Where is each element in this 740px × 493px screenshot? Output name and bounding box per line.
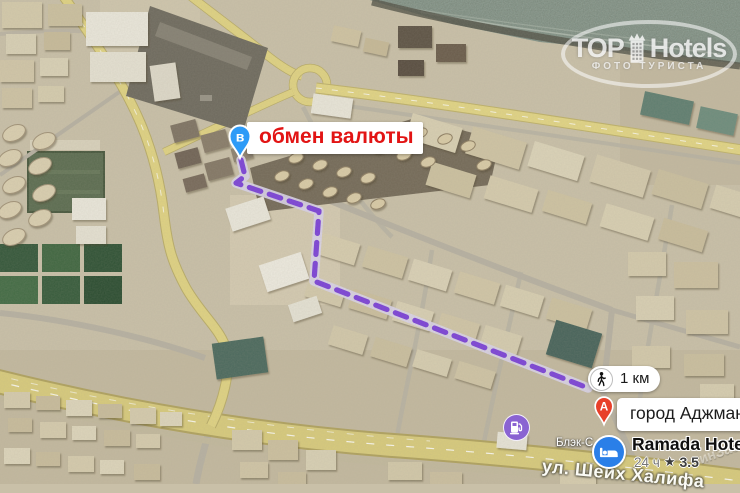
hotel-rating: 3.5 [679,454,698,470]
destination-pin-letter: A [600,401,609,414]
hotel-meta: 24 ч ★ 3.5 [634,454,699,470]
poi-label-small: Блэк-С [556,437,593,449]
hotel-hours: 24 ч [634,455,660,470]
fuel-station-poi[interactable] [503,414,530,441]
hotel-poi[interactable] [592,435,626,469]
origin-label[interactable]: обмен валюты [247,122,423,154]
route-distance-badge[interactable]: 1 км [588,366,660,392]
star-icon: ★ [664,454,676,470]
origin-pin-b[interactable]: в [227,123,253,161]
destination-label-text: город Аджман [630,403,740,424]
distance-text: 1 км [620,370,649,387]
origin-pin-letter: в [236,129,245,145]
destination-pin-a[interactable]: A [593,395,615,427]
fuel-pump-icon [510,421,523,435]
hotel-name[interactable]: Ramada Hotel & [632,434,740,455]
origin-label-text: обмен валюты [259,125,414,149]
destination-label[interactable]: город Аджман [617,398,740,431]
walking-icon [590,368,613,391]
bed-icon [599,446,619,459]
